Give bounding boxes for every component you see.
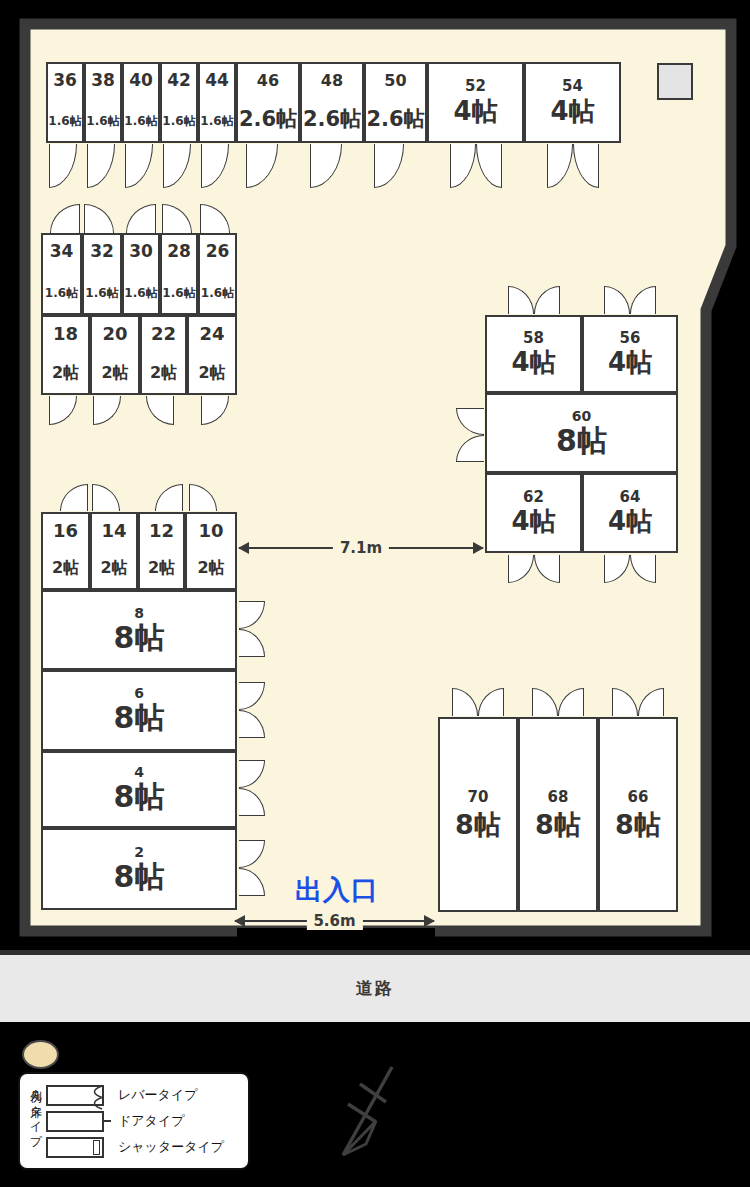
unit-64: 644帖 <box>582 473 678 553</box>
unit-number: 34 <box>50 242 74 262</box>
unit-size: 4帖 <box>511 507 555 537</box>
unit-number: 20 <box>102 324 127 345</box>
unit-number: 16 <box>53 521 78 542</box>
unit-40: 401.6帖 <box>122 62 160 143</box>
unit-size: 8帖 <box>615 809 661 840</box>
unit-size: 1.6帖 <box>124 287 157 301</box>
legend-label: ドアタイプ <box>118 1112 185 1130</box>
unit-number: 44 <box>205 71 229 91</box>
unit-32: 321.6帖 <box>82 233 122 315</box>
unit-54: 544帖 <box>524 62 621 143</box>
unit-size: 2帖 <box>52 364 79 382</box>
unit-number: 54 <box>562 78 583 95</box>
unit-12: 122帖 <box>138 512 185 590</box>
unit-number: 8 <box>134 605 144 621</box>
legend-label: レバータイプ <box>118 1086 198 1104</box>
legend-item-shutter: シャッタータイプ <box>46 1134 242 1160</box>
unit-number: 64 <box>620 489 641 506</box>
unit-number: 24 <box>199 324 224 345</box>
marker-ellipse <box>22 1040 59 1069</box>
unit-size: 4帖 <box>608 348 652 378</box>
unit-size: 4帖 <box>550 97 594 127</box>
unit-6: 68帖 <box>41 670 237 751</box>
unit-size: 8帖 <box>455 809 501 840</box>
unit-number: 14 <box>101 521 126 542</box>
unit-number: 2 <box>134 844 144 860</box>
unit-62: 624帖 <box>485 473 582 553</box>
unit-48: 482.6帖 <box>300 62 364 143</box>
unit-number: 40 <box>129 71 153 91</box>
unit-size: 8帖 <box>114 621 165 656</box>
unit-size: 8帖 <box>556 424 607 459</box>
unit-size: 1.6帖 <box>86 115 119 129</box>
unit-size: 2.6帖 <box>239 107 297 131</box>
unit-58: 584帖 <box>485 315 582 393</box>
road: 道路 <box>0 950 750 1022</box>
unit-number: 36 <box>53 71 77 91</box>
unit-size: 2帖 <box>101 364 128 382</box>
unit-number: 70 <box>468 789 489 806</box>
unit-number: 48 <box>321 72 343 90</box>
lever-type-icon <box>46 1085 104 1106</box>
unit-number: 28 <box>167 242 191 262</box>
road-label: 道路 <box>356 977 394 1000</box>
unit-size: 1.6帖 <box>48 115 81 129</box>
unit-number: 52 <box>465 78 486 95</box>
unit-56: 564帖 <box>582 315 678 393</box>
unit-number: 50 <box>384 72 406 90</box>
unit-70: 708帖 <box>438 717 518 912</box>
unit-number: 56 <box>620 330 641 347</box>
unit-size: 1.6帖 <box>162 115 195 129</box>
unit-size: 4帖 <box>608 507 652 537</box>
unit-number: 42 <box>167 71 191 91</box>
unit-30: 301.6帖 <box>122 233 160 315</box>
arrowhead-left-icon <box>238 542 249 554</box>
unit-size: 2.6帖 <box>366 107 424 131</box>
arrowhead-left-icon <box>234 915 245 927</box>
unit-number: 12 <box>149 521 174 542</box>
unit-number: 26 <box>206 242 230 262</box>
unit-size: 2帖 <box>52 559 79 577</box>
unit-size: 1.6帖 <box>201 287 234 301</box>
unit-number: 60 <box>572 408 591 424</box>
legend-item-lever: レバータイプ <box>46 1082 242 1108</box>
unit-68: 688帖 <box>518 717 598 912</box>
unit-42: 421.6帖 <box>160 62 198 143</box>
unit-18: 182帖 <box>41 315 90 395</box>
unit-number: 38 <box>91 71 115 91</box>
unit-number: 58 <box>523 330 544 347</box>
unit-number: 22 <box>151 324 176 345</box>
unit-number: 66 <box>628 789 649 806</box>
legend: 凡例：扉タイプ レバータイプ ドアタイプ シャッタータイプ <box>18 1072 250 1170</box>
unit-52: 524帖 <box>427 62 524 143</box>
unit-66: 668帖 <box>598 717 678 912</box>
unit-20: 202帖 <box>90 315 140 395</box>
unit-size: 8帖 <box>114 701 165 736</box>
unit-22: 222帖 <box>140 315 187 395</box>
unit-size: 1.6帖 <box>162 287 195 301</box>
shutter-type-icon <box>46 1137 104 1158</box>
unit-28: 281.6帖 <box>160 233 198 315</box>
unit-4: 48帖 <box>41 751 237 828</box>
unit-number: 62 <box>523 489 544 506</box>
unit-size: 2.6帖 <box>303 107 361 131</box>
unit-number: 6 <box>134 685 144 701</box>
entrance-label: 出入口 <box>295 872 379 908</box>
dimension-label: 7.1m <box>333 539 389 557</box>
north-arrow-icon <box>330 1060 410 1165</box>
arrowhead-right-icon <box>473 542 484 554</box>
unit-size: 2帖 <box>148 559 175 577</box>
unit-8: 88帖 <box>41 590 237 670</box>
unit-size: 2帖 <box>197 559 224 577</box>
unit-size: 1.6帖 <box>124 115 157 129</box>
unit-size: 1.6帖 <box>45 287 78 301</box>
pillar <box>657 63 693 100</box>
unit-34: 341.6帖 <box>41 233 82 315</box>
legend-item-door: ドアタイプ <box>46 1108 242 1134</box>
unit-50: 502.6帖 <box>364 62 427 143</box>
unit-size: 2帖 <box>100 559 127 577</box>
unit-10: 102帖 <box>185 512 237 590</box>
unit-44: 441.6帖 <box>198 62 236 143</box>
arrowhead-right-icon <box>424 915 435 927</box>
unit-60: 608帖 <box>485 393 678 473</box>
unit-size: 1.6帖 <box>200 115 233 129</box>
unit-46: 462.6帖 <box>236 62 300 143</box>
dimension-7.1m: 7.1m <box>239 540 483 556</box>
unit-number: 4 <box>134 764 144 780</box>
unit-size: 4帖 <box>511 348 555 378</box>
legend-rows: レバータイプ ドアタイプ シャッタータイプ <box>46 1081 242 1161</box>
unit-number: 10 <box>198 521 223 542</box>
unit-number: 32 <box>90 242 114 262</box>
unit-38: 381.6帖 <box>84 62 122 143</box>
unit-36: 361.6帖 <box>46 62 84 143</box>
unit-size: 8帖 <box>114 860 165 895</box>
unit-number: 46 <box>257 72 279 90</box>
unit-size: 2帖 <box>150 364 177 382</box>
dimension-label: 5.6m <box>306 912 362 930</box>
unit-16: 162帖 <box>41 512 90 590</box>
unit-size: 8帖 <box>114 780 165 815</box>
legend-title: 凡例：扉タイプ <box>30 1081 42 1161</box>
legend-label: シャッタータイプ <box>118 1138 224 1156</box>
unit-14: 142帖 <box>90 512 138 590</box>
unit-number: 30 <box>129 242 153 262</box>
unit-2: 28帖 <box>41 828 237 910</box>
door-type-icon <box>46 1111 104 1132</box>
unit-number: 18 <box>53 324 78 345</box>
unit-size: 2帖 <box>198 364 225 382</box>
unit-26: 261.6帖 <box>198 233 237 315</box>
unit-number: 68 <box>548 789 569 806</box>
floor-plan: 出入口 道路 凡例：扉タイプ レバータイプ ドアタイプ シャッター <box>0 0 750 1187</box>
unit-size: 4帖 <box>453 97 497 127</box>
unit-size: 8帖 <box>535 809 581 840</box>
unit-24: 242帖 <box>187 315 237 395</box>
unit-size: 1.6帖 <box>85 287 118 301</box>
dimension-5.6m: 5.6m <box>235 913 434 929</box>
